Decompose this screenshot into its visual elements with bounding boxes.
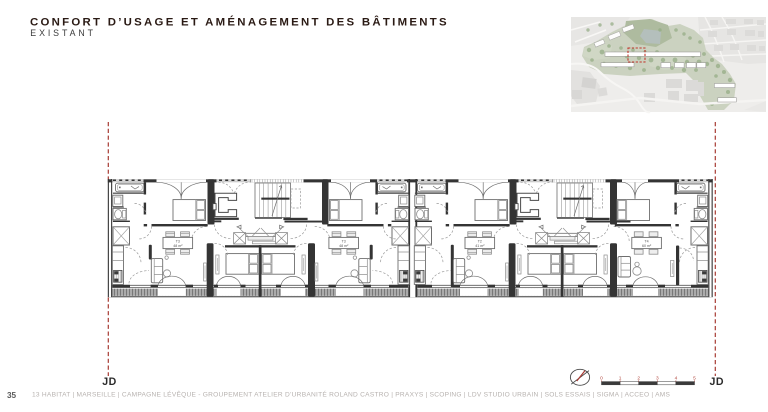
svg-text:13 HABITAT | MARSEILLE | CAMPA: 13 HABITAT | MARSEILLE | CAMPAGNE LÉVÊQU… <box>32 390 670 399</box>
svg-text:EXISTANT: EXISTANT <box>30 28 96 38</box>
svg-text:60 m²: 60 m² <box>642 244 652 248</box>
svg-text:CONFORT D’USAGE ET AMÉNAGEMENT: CONFORT D’USAGE ET AMÉNAGEMENT DES BÂTIM… <box>30 15 449 28</box>
svg-text:T2: T2 <box>478 239 482 243</box>
svg-text:JD: JD <box>102 376 117 388</box>
svg-text:48 m²: 48 m² <box>173 244 183 248</box>
svg-text:T3: T3 <box>176 239 180 243</box>
svg-text:T4: T4 <box>644 239 648 243</box>
svg-text:T3: T3 <box>342 239 346 243</box>
svg-text:48 m²: 48 m² <box>339 244 349 248</box>
svg-text:JD: JD <box>710 376 725 388</box>
svg-text:35: 35 <box>7 391 17 400</box>
svg-text:41 m²: 41 m² <box>475 244 485 248</box>
